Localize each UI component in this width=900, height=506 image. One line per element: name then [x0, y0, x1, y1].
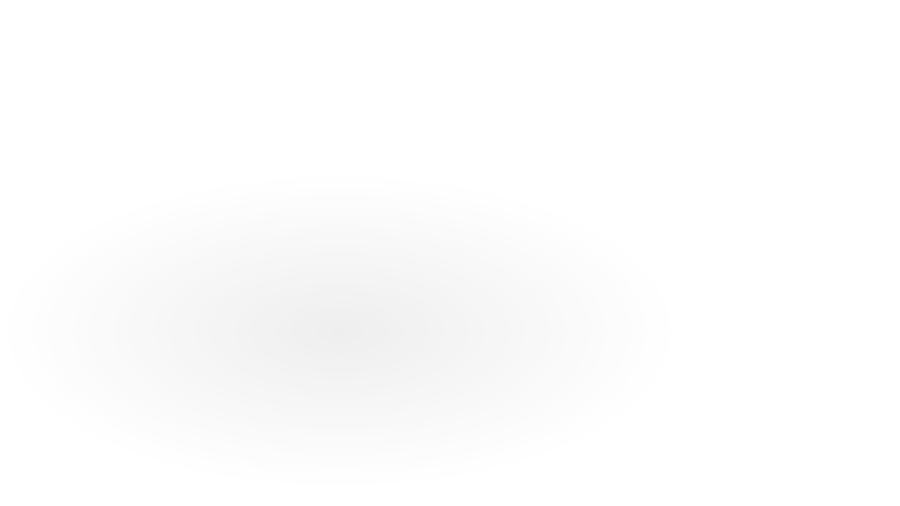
gis-layer-stack-illustration: [0, 0, 900, 506]
soft-shadow-halo: [0, 40, 850, 506]
